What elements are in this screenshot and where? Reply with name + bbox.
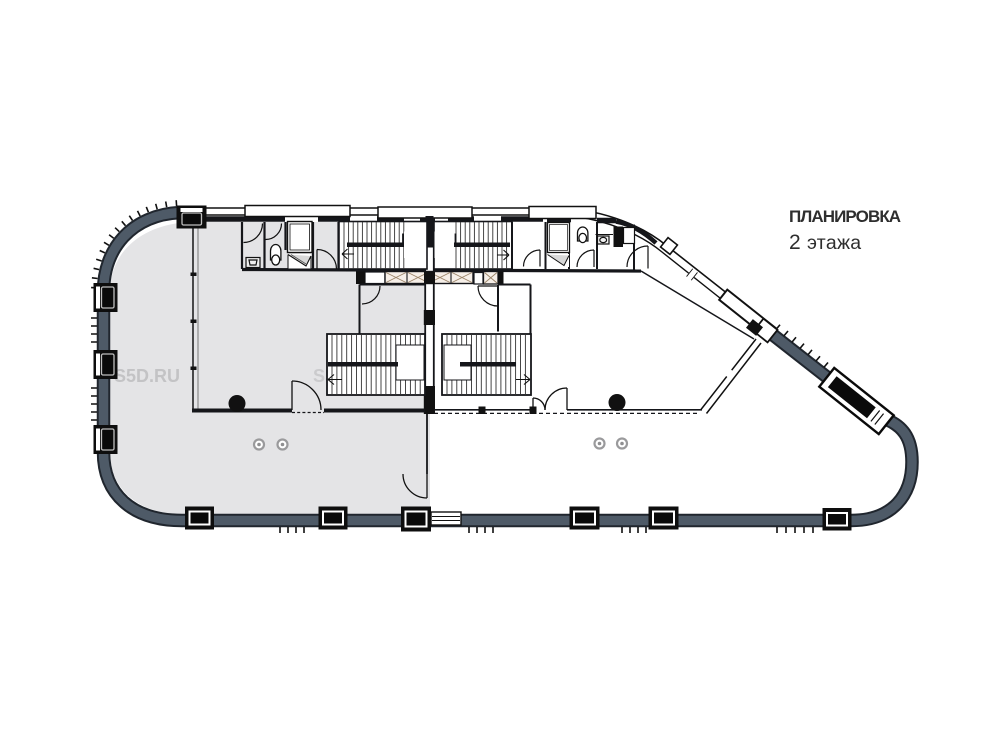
svg-text:S5D.RU: S5D.RU [114,366,180,386]
